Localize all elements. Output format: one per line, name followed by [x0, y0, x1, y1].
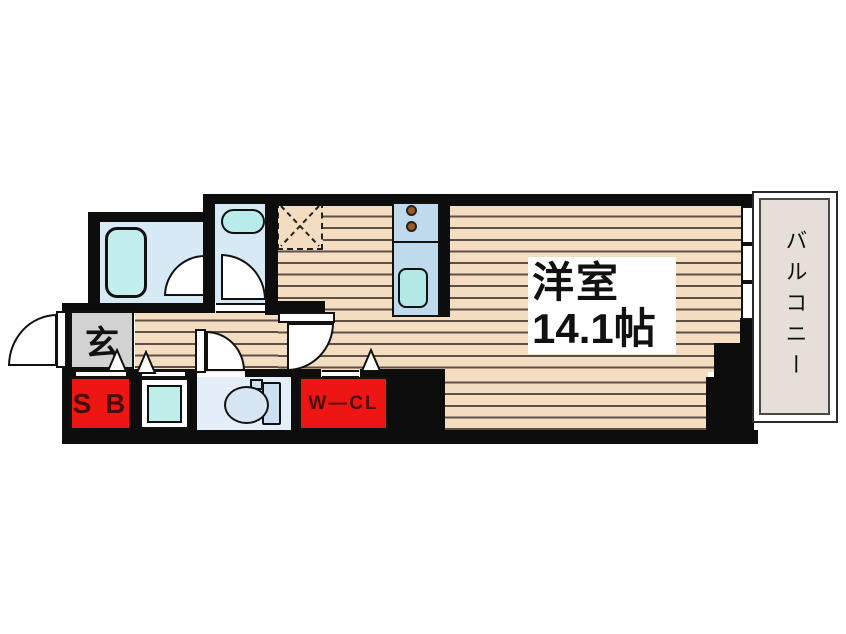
entrance-door-leaf: [56, 311, 67, 368]
refrigerator-space-icon: [277, 202, 323, 250]
step-triangle-icon: [360, 348, 382, 373]
washbasin-doorway: [216, 303, 265, 313]
walk-in-closet: W—CL: [299, 377, 388, 430]
mainroom-door-leaf: [278, 312, 335, 323]
wall-bottom: [62, 430, 758, 444]
pipe-space-block-b: [706, 377, 740, 432]
main-room-floor-lower: [442, 372, 708, 430]
bathtub-icon: [105, 227, 147, 298]
main-room-name: 洋室: [532, 260, 676, 306]
wall-washbasin-kitchen: [265, 194, 278, 315]
wall-bathroom-left: [88, 212, 100, 313]
shoe-box: S B: [70, 377, 131, 430]
toilet-door-leaf: [195, 329, 206, 373]
wall-div-toilet-wcl: [291, 369, 299, 430]
wall-block-right-of-wcl: [388, 369, 445, 430]
step-triangle-icon: [106, 348, 128, 373]
entrance-door-swing-icon: [8, 314, 57, 366]
toilet-icon: [224, 386, 269, 424]
walk-in-closet-label: W—CL: [308, 393, 378, 415]
wall-top: [203, 194, 752, 206]
stove-burner-icon: [406, 221, 417, 232]
wcl-opening: [322, 370, 359, 378]
shoe-box-label: S B: [73, 388, 129, 420]
floor-plan: 玄 S B W—CL バルコニー: [0, 0, 846, 634]
washing-machine-pan-icon: [147, 385, 182, 423]
washbasin-icon: [221, 209, 265, 234]
wall-kitchen-stub: [440, 206, 450, 317]
wall-bathroom-top: [88, 212, 215, 222]
main-room-label: 洋室 14.1帖: [528, 257, 676, 354]
main-room-size: 14.1帖: [532, 306, 676, 352]
step-triangle-icon: [135, 350, 157, 375]
stove-burner-icon: [406, 205, 417, 216]
balcony: バルコニー: [759, 198, 830, 415]
balcony-label: バルコニー: [779, 229, 811, 384]
kitchen-sink-icon: [398, 268, 428, 308]
